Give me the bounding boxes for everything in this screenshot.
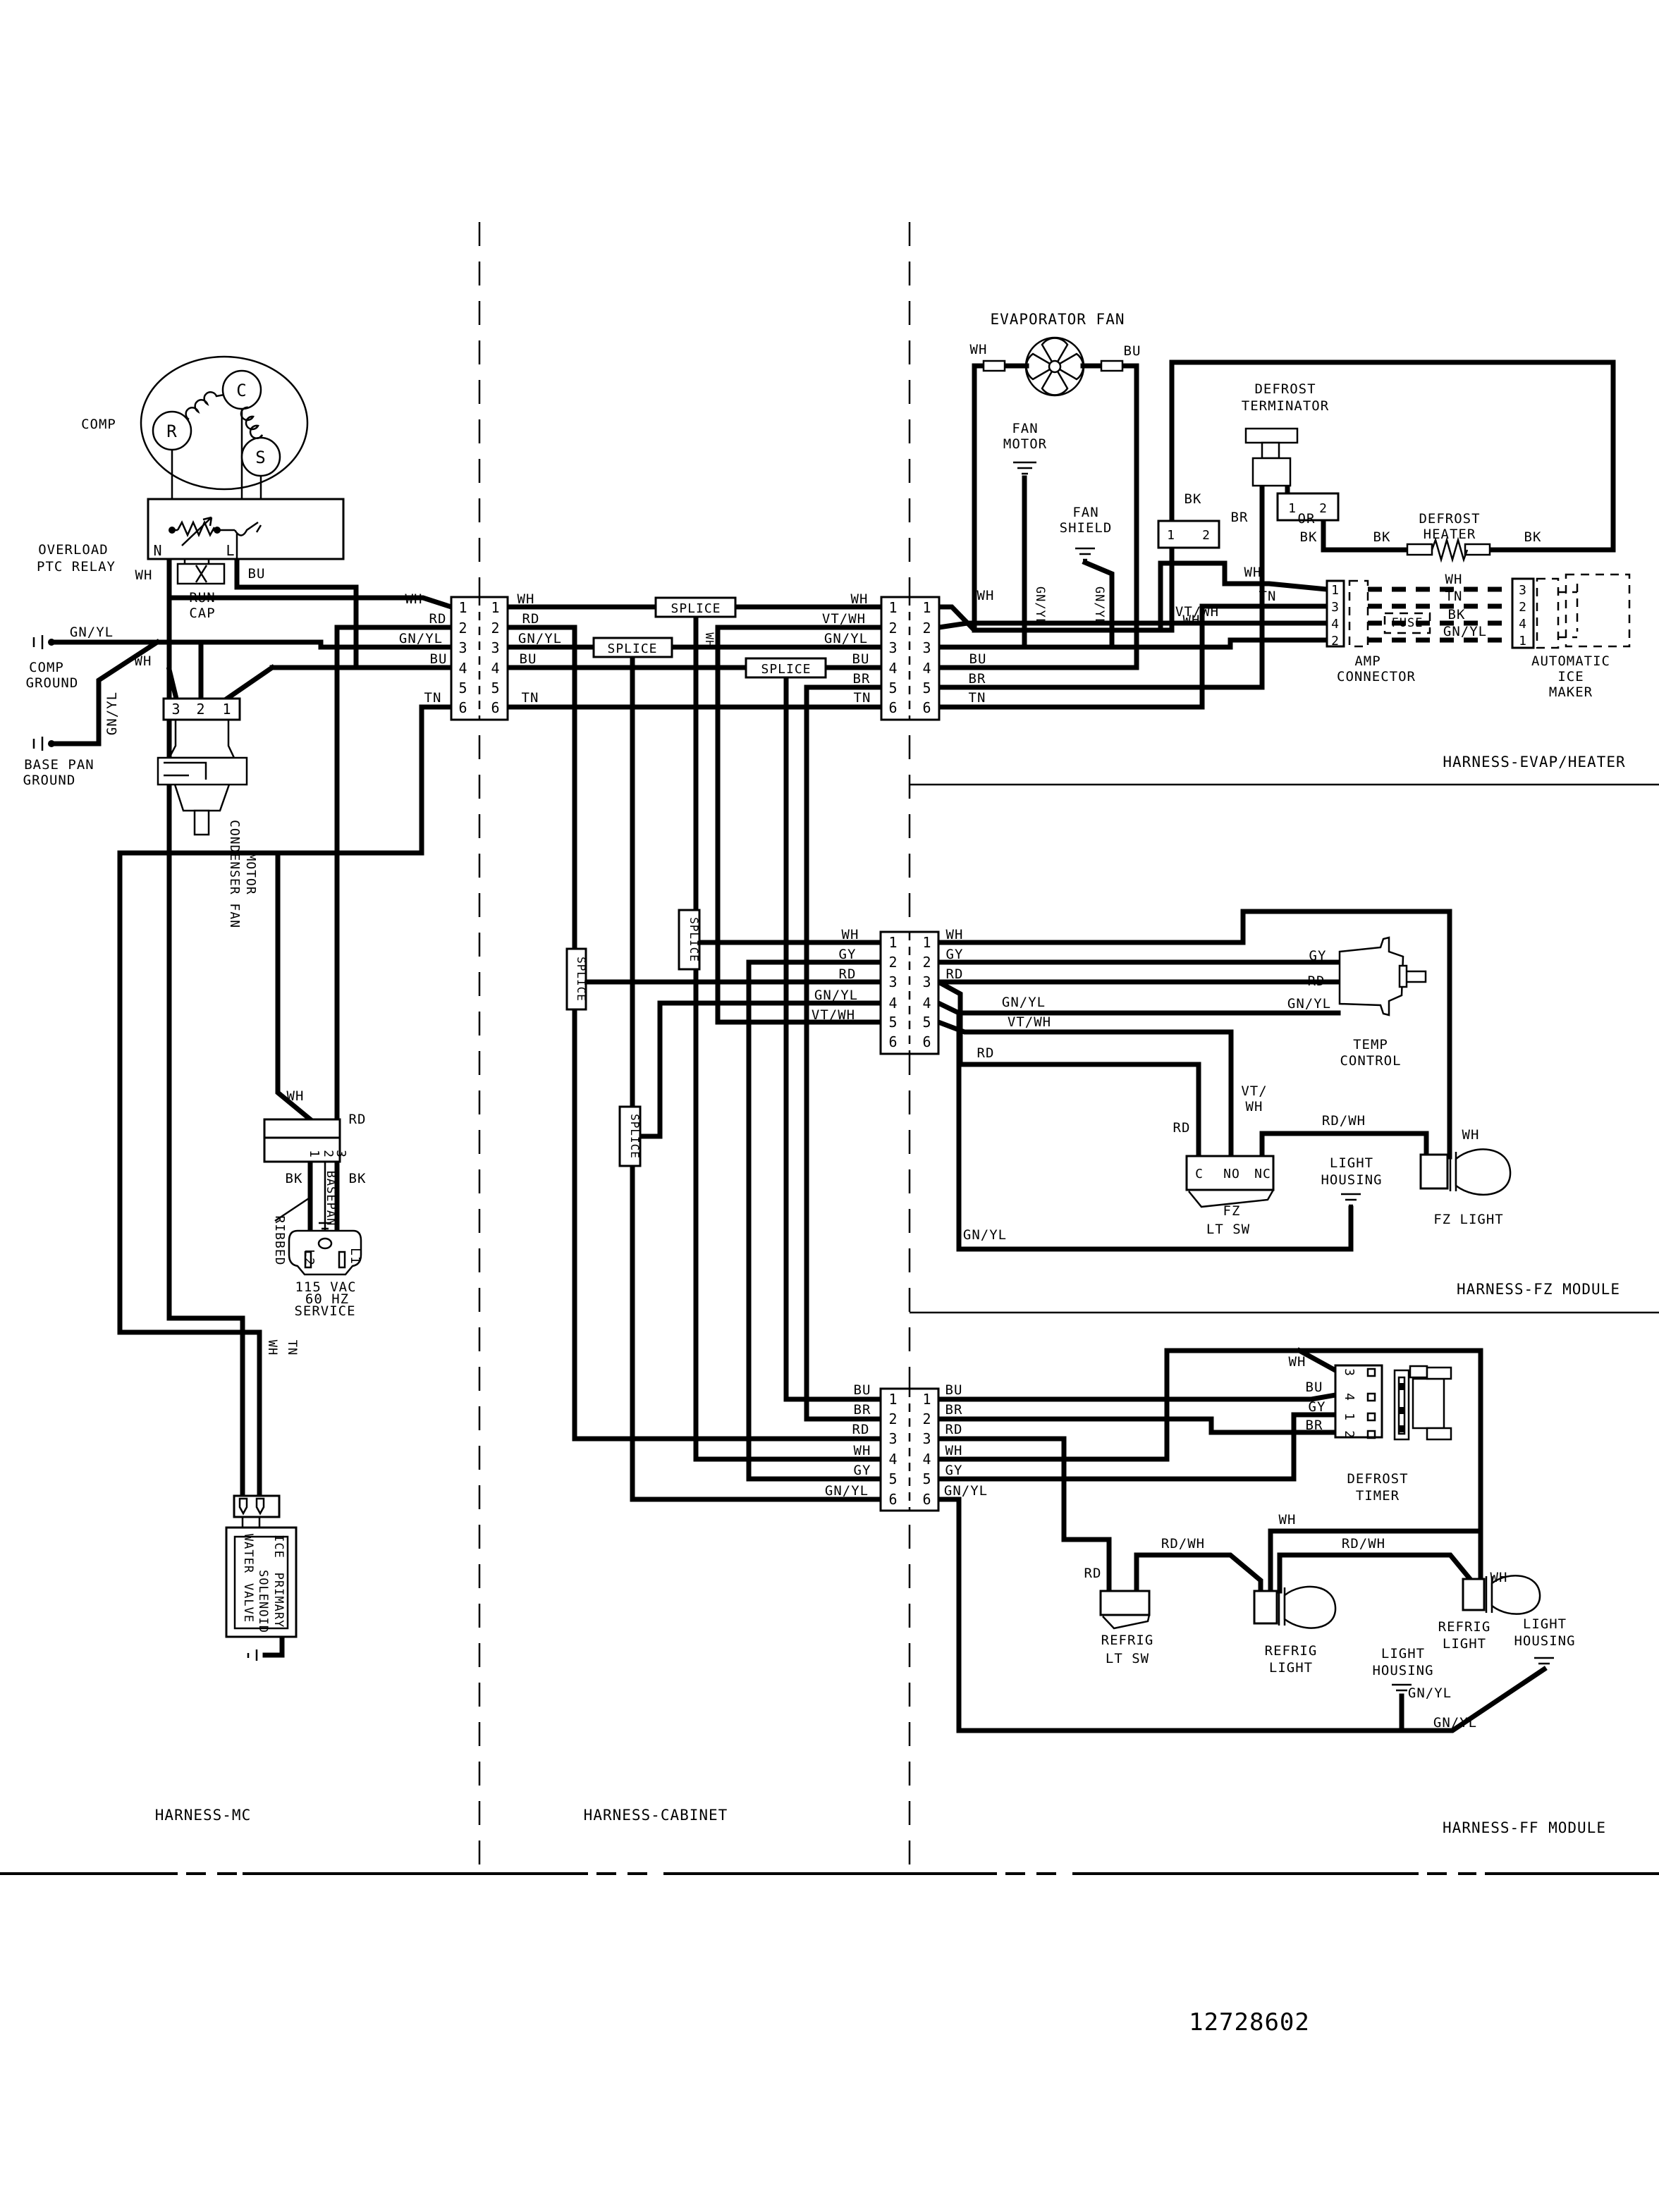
connB-bu-l: BU [852,651,870,667]
connA-rd-r: RD [522,611,540,627]
rd-ff: RD [1084,1566,1102,1581]
connA-p5r: 5 [491,680,500,696]
tc-gnyl: GN/YL [1287,996,1331,1012]
amp-p3: 3 [1331,600,1340,615]
timer-p4: 4 [1342,1393,1357,1401]
connD-gy-r: GY [945,1463,963,1478]
connD-p5l: 5 [888,1470,898,1487]
icemaker-2: ICE [1557,669,1584,684]
connA-p5l: 5 [458,680,467,696]
connC-rd-low: RD [977,1045,995,1061]
connC-p5l: 5 [888,1014,898,1031]
cond-pin-2: 2 [196,701,205,718]
wire-wh-valve: WH [265,1340,279,1356]
connB-p5r: 5 [922,680,931,696]
wire-bk-2: BK [349,1171,367,1186]
connA-p1r: 1 [491,599,500,616]
connC-p5r: 5 [922,1014,931,1031]
connD-wh-r: WH [945,1443,963,1458]
defrost-timer-1: DEFROST [1347,1471,1408,1487]
connA-p6l: 6 [458,699,467,716]
c12l-1: 1 [1167,528,1175,543]
labels-layer: COMPRCSOVERLOADPTC RELAYNLWHBURUNCAPGN/Y… [23,311,1626,2036]
gnyl-fz: GN/YL [963,1227,1007,1243]
connD-bu-l: BU [854,1382,871,1398]
dash-gnyl: GN/YL [1443,624,1487,639]
connC-p1l: 1 [888,934,898,951]
fzsw-no: NO [1223,1167,1240,1181]
condenser-2: MOTOR [243,853,258,895]
harness-mc: HARNESS-MC [155,1807,251,1824]
connB-tn-r: TN [969,690,986,706]
connA-bu-l: BU [430,651,448,667]
connC-p6l: 6 [888,1033,898,1050]
splice-a: SPLICE [671,601,721,616]
basepan-ground-symbol [34,737,55,751]
dash-wh: WH [1445,572,1463,587]
term-r: R [166,422,177,441]
connB-br-r: BR [969,671,986,687]
amp-tn: TN [1259,589,1277,604]
amp-p4: 4 [1331,617,1340,632]
wiring-diagram: COMPRCSOVERLOADPTC RELAYNLWHBURUNCAPGN/Y… [0,0,1659,2212]
fz-sw-1: FZ [1223,1203,1241,1219]
amp-conn-1: AMP [1354,653,1381,669]
connA-gnyl-l: GN/YL [399,631,443,646]
connA-p2r: 2 [491,620,500,637]
connB-p4l: 4 [888,660,898,677]
harness-cabinet: HARNESS-CABINET [584,1807,728,1824]
gnyl-motor: GN/YL [1033,586,1047,626]
evap-fan: EVAPORATOR FAN [990,311,1125,328]
icemaker-1: AUTOMATIC [1531,653,1610,669]
splice-c: SPLICE [761,662,811,677]
comp-ground-1: COMP [29,660,64,675]
connD-p4r: 4 [922,1451,931,1468]
overload-1: OVERLOAD [38,542,109,558]
wires-ff [938,1351,1544,1731]
connB-gnyl-l: GN/YL [824,631,868,646]
wire-rd-basepan: RD [349,1112,367,1127]
cond-pin-3: 3 [171,701,180,718]
connD-p1r: 1 [922,1391,931,1408]
fan-bu: BU [1124,343,1141,359]
basepan-ground-2: GROUND [23,773,76,788]
wire-bk-term: BK [1184,491,1202,507]
splice-3: SPLICE [687,917,701,962]
refrig-light1-2: LIGHT [1269,1660,1313,1676]
refrig-light1-1: REFRIG [1265,1643,1318,1659]
term-c: C [236,381,247,400]
basepan-pin-2: 2 [321,1150,336,1158]
connC-p2r: 2 [922,954,931,971]
timer-p1: 1 [1342,1413,1357,1421]
valve-primary: PRIMARY [271,1573,286,1628]
connB-vtwh-l: VT/WH [822,611,866,627]
connD-p5r: 5 [922,1470,931,1487]
cond-pin-1: 1 [222,701,231,718]
defrost-heater-1: DEFROST [1419,511,1480,527]
connB-p1l: 1 [888,599,898,616]
rdwh-fz: RD/WH [1322,1113,1366,1129]
wire-wh-cond: WH [135,653,152,669]
connC-gy-r: GY [946,947,964,962]
connD-br-r: BR [945,1402,963,1418]
gnyl-shield: GN/YL [1092,586,1106,626]
c12l-2: 2 [1202,528,1211,543]
timer-bu: BU [1306,1380,1323,1395]
vtwh-sw-2: WH [1246,1099,1263,1114]
overload-2: PTC RELAY [37,559,116,574]
amp-wh: WH [1244,565,1262,580]
icemaker-3: MAKER [1549,684,1593,700]
amp-p2: 2 [1331,634,1340,649]
connB-br-l: BR [853,671,871,687]
timer-gy: GY [1309,1399,1326,1415]
refrig-light2-1: REFRIG [1438,1619,1491,1635]
fan-wh: WH [970,342,988,357]
wh-ff-2: WH [1490,1570,1508,1585]
connB-bu-r: BU [969,651,987,667]
ice-p3: 3 [1519,583,1527,598]
valve-solenoid: SOLENOID [256,1570,270,1633]
connD-wh-l: WH [854,1443,871,1458]
connC-gnyl-r: GN/YL [1002,995,1046,1010]
housing-ff2-2: HOUSING [1514,1633,1575,1649]
dash-bk: BK [1448,607,1466,622]
heater-bk-1: BK [1300,529,1318,545]
connB-p4r: 4 [922,660,931,677]
refrig-sw-2: LT SW [1106,1651,1149,1666]
plug-l1: L1 [348,1248,362,1265]
relay-l: L [226,542,235,559]
relay-n: N [153,542,162,559]
wire-tn-valve: TN [285,1340,299,1356]
ribbed-label: RIBBED [272,1215,287,1265]
connB-p6r: 6 [922,699,931,716]
fz-light [1421,1149,1510,1194]
heater-bk-3: BK [1524,529,1542,545]
connC-vtwh-r: VT/WH [1008,1014,1051,1030]
fz-sw-2: LT SW [1206,1222,1250,1237]
temp-control [1340,938,1426,1015]
connC-gnyl-l: GN/YL [814,988,858,1003]
connD-gy-l: GY [854,1463,871,1478]
connC-p6r: 6 [922,1033,931,1050]
connB-p3r: 3 [922,639,931,656]
refrig-light-switch [1101,1591,1149,1628]
plug-l2: L2 [302,1249,317,1266]
wire-wh-basepan: WH [287,1088,305,1104]
connA-p3l: 3 [458,639,467,656]
splice-1: SPLICE [575,957,588,1002]
housing-ff1-2: HOUSING [1372,1663,1433,1678]
splice-b: SPLICE [607,641,657,656]
connD-p6r: 6 [922,1491,931,1508]
connA-tn-l: TN [424,690,442,706]
comp-label: COMP [81,417,116,432]
fan-motor-ground [1013,462,1036,474]
evaporator-fan [984,338,1122,395]
connA-tn-r: TN [522,690,539,706]
harness-fz: HARNESS-FZ MODULE [1457,1281,1620,1298]
connC-wh-r: WH [946,927,964,942]
wiring-diagram-page: COMPRCSOVERLOADPTC RELAYNLWHBURUNCAPGN/Y… [0,0,1659,2212]
defrost-heater-2: HEATER [1424,527,1476,542]
splice-a-wh: WH [703,632,716,647]
fan-shield-ground [1075,548,1095,560]
c12r-1: 1 [1288,501,1297,516]
connA-wh-l: WH [405,591,423,607]
wires-cabinet [508,607,881,1499]
wire-gnyl-rot: GN/YL [104,692,120,735]
condenser-1: CONDENSER FAN [227,820,242,928]
c12r-2: 2 [1319,501,1328,516]
term-s: S [255,448,266,467]
wires-evap [939,362,1613,707]
timer-p2: 2 [1342,1430,1357,1439]
comp-ground-2: GROUND [26,675,79,691]
refrig-light2-2: LIGHT [1443,1636,1486,1652]
connD-p3l: 3 [888,1430,898,1447]
connC-vtwh-l: VT/WH [812,1007,855,1023]
wire-br-term: BR [1231,510,1249,525]
connB-p2l: 2 [888,620,898,637]
connD-gnyl-l: GN/YL [825,1483,869,1499]
ice-p4: 4 [1519,617,1527,632]
gnyl-ff-2: GN/YL [1433,1715,1477,1731]
fan-shield-2: SHIELD [1060,520,1113,536]
connB-p2r: 2 [922,620,931,637]
harness-evap: HARNESS-EVAP/HEATER [1443,754,1625,770]
fan-shield-1: FAN [1072,505,1098,520]
temp-control-1: TEMP [1353,1037,1388,1052]
fuse-label: FUSE [1392,616,1424,630]
connD-p6l: 6 [888,1491,898,1508]
connD-p2r: 2 [922,1411,931,1427]
connC-p2l: 2 [888,954,898,971]
housing-fz-2: HOUSING [1321,1172,1382,1188]
housing-fz-1: LIGHT [1330,1155,1373,1171]
connD-br-l: BR [854,1402,871,1418]
wire-bu-l: BU [248,566,266,582]
defrost-term-1: DEFROST [1254,381,1316,397]
connD-p4l: 4 [888,1451,898,1468]
connB-p5l: 5 [888,680,898,696]
connC-gy-l: GY [839,947,857,962]
fz-light-switch [1187,1156,1273,1207]
connA-p4l: 4 [458,660,467,677]
rdwh-ff-1: RD/WH [1161,1536,1205,1552]
fan-motor-2: MOTOR [1003,436,1047,452]
wh-ff-1: WH [1279,1512,1297,1528]
tc-gy: GY [1309,948,1327,964]
timer-wh: WH [1289,1354,1306,1370]
connB-wh-r: WH [977,588,995,603]
connB-p1r: 1 [922,599,931,616]
ice-maker-connector [1512,574,1629,648]
runcap-2: CAP [189,606,215,621]
fz-light: FZ LIGHT [1433,1212,1504,1227]
connB-wh-l: WH [851,591,869,607]
connD-rd-l: RD [852,1422,870,1437]
wire-gnyl-ground: GN/YL [70,625,114,640]
rdwh-ff-2: RD/WH [1342,1536,1385,1552]
connA-gnyl-r: GN/YL [518,631,562,646]
basepan-pin-1: 1 [307,1150,322,1158]
connC-p3l: 3 [888,973,898,990]
heater-bk-2: BK [1373,529,1391,545]
vtwh-sw-1: VT/ [1241,1083,1267,1099]
valve-valve: VALVE [241,1583,255,1623]
housing-ff2-1: LIGHT [1523,1616,1567,1632]
connD-p3r: 3 [922,1430,931,1447]
ice-p2: 2 [1519,600,1527,615]
connA-p3r: 3 [491,639,500,656]
splice-2: SPLICE [628,1114,642,1159]
connB-p3l: 3 [888,639,898,656]
connA-wh-r: WH [518,591,535,607]
tc-rd: RD [1308,973,1326,989]
basepan-pin-3: 3 [333,1150,348,1158]
basepan-ground-1: BASE PAN [24,757,94,773]
basepan-label: BASEPAN [324,1171,338,1227]
connA-p4r: 4 [491,660,500,677]
connB-tn-l: TN [854,690,871,706]
comp-ground-symbol [34,635,55,649]
connA-p2l: 2 [458,620,467,637]
defrost-term-2: TERMINATOR [1242,398,1329,414]
connC-wh-l: WH [842,927,859,942]
defrost-heater [1407,540,1490,560]
wire-bk-1: BK [286,1171,303,1186]
connC-p3r: 3 [922,973,931,990]
connA-rd-l: RD [429,611,447,627]
connD-gnyl-r: GN/YL [944,1483,988,1499]
dash-tn: TN [1445,589,1463,604]
connD-p1l: 1 [888,1391,898,1408]
gnyl-ff-1: GN/YL [1408,1685,1452,1701]
wh-fzlight: WH [1462,1127,1480,1143]
refrig-light-1 [1254,1587,1335,1628]
part-number: 12728602 [1189,2008,1310,2036]
connC-rd-r: RD [946,966,964,982]
amp-vtwh: VT/WH [1175,604,1219,620]
timer-br: BR [1306,1418,1323,1433]
fan-motor-1: FAN [1012,421,1038,436]
refrig-sw-1: REFRIG [1101,1633,1154,1648]
connA-p1l: 1 [458,599,467,616]
harness-ff: HARNESS-FF MODULE [1443,1819,1606,1836]
connA-p6r: 6 [491,699,500,716]
valve-water: WATER [241,1534,255,1573]
housing-ff1-1: LIGHT [1381,1646,1425,1661]
wire-or-term: OR [1298,511,1316,527]
amp-p1: 1 [1331,583,1340,598]
valve-ice: ICE [271,1535,286,1559]
fzsw-c: C [1195,1167,1204,1181]
timer-p3: 3 [1342,1368,1357,1377]
connC-p4r: 4 [922,995,931,1012]
ice-p1: 1 [1519,634,1527,649]
service-3: SERVICE [294,1303,355,1319]
connB-p6l: 6 [888,699,898,716]
rd-sw: RD [1173,1120,1191,1136]
connD-rd-r: RD [945,1422,963,1437]
connA-bu-r: BU [520,651,537,667]
overload-ptc-relay [148,499,343,584]
connC-p4l: 4 [888,995,898,1012]
connD-bu-r: BU [945,1382,963,1398]
runcap-1: RUN [189,590,215,606]
defrost-timer-2: TIMER [1356,1488,1400,1504]
connC-p1r: 1 [922,934,931,951]
temp-control-2: CONTROL [1340,1053,1401,1069]
connC-rd-l: RD [839,966,857,982]
defrost-terminator [1246,429,1297,486]
wire-wh-n: WH [135,567,153,583]
amp-conn-2: CONNECTOR [1337,669,1416,684]
fz-light-housing-ground [1341,1194,1361,1205]
fzsw-nc: NC [1254,1167,1271,1181]
connD-p2l: 2 [888,1411,898,1427]
